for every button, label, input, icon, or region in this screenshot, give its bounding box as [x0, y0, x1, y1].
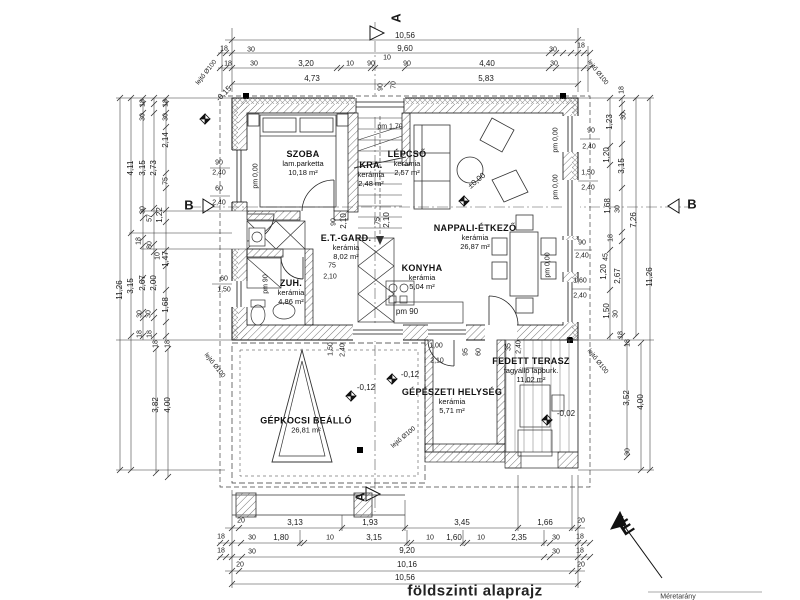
dim-bottom: 20 — [237, 518, 245, 525]
dim-top: 30 — [250, 61, 258, 68]
washbasin — [249, 228, 265, 246]
dim-left: 30 — [137, 310, 144, 318]
dim-right: 30 — [625, 448, 632, 456]
dim-right: 1,23 — [606, 114, 614, 130]
room-name: NAPPALI-ÉTKEZŐ — [434, 223, 517, 233]
dim-left: 75 — [163, 177, 170, 185]
dim-top: 30 — [549, 47, 557, 54]
dim-top: 18 — [224, 61, 232, 68]
dim-window: 2,40 — [212, 170, 226, 177]
carport-roof-support-triangle — [272, 350, 332, 462]
dim-window: 1,50 — [217, 287, 231, 294]
dim-right: 1,20 — [600, 264, 608, 280]
level-minus-0-12: -0,12 — [357, 384, 375, 392]
room-label-gépkocsi-beálló: GÉPKOCSI BEÁLLÓ26,81 m² — [260, 416, 352, 435]
dim-bottom: 18 — [217, 534, 225, 541]
dim-bottom: 30 — [552, 549, 560, 556]
dim-top: 4,40 — [479, 60, 495, 68]
dim-left: 2,67 — [139, 275, 147, 291]
room-area: 26,81 m² — [260, 426, 352, 435]
room-name: LÉPCSŐ — [388, 149, 427, 159]
level-minus-0-02: -0,02 — [557, 410, 575, 418]
dim-left: 2,14 — [162, 132, 170, 148]
plan-linework — [0, 0, 800, 600]
section-letter-b: B — [184, 199, 193, 212]
parapet-note: pm 90 — [263, 274, 270, 293]
dim-bottom: 20 — [577, 518, 585, 525]
dim-left: 18 — [147, 330, 154, 338]
room-name: ZUH. — [278, 278, 305, 288]
room-label-szoba: SZOBAlam.parketta10,18 m² — [282, 149, 323, 177]
dim-bottom: 10 — [426, 535, 434, 542]
room-label-fedett-terasz: FEDETT TERASZfagyálló lapburk.11,02 m² — [492, 356, 569, 384]
dim-door: 2,10 — [430, 358, 444, 365]
dim-right: 30 — [613, 310, 620, 318]
dim-bottom: 2,35 — [511, 534, 527, 542]
dim-window: 2,40 — [212, 200, 226, 207]
dim-door: 2,10 — [340, 213, 348, 229]
room-finish: kerámia — [434, 233, 517, 242]
dim-door: 90 — [331, 218, 338, 226]
dim-left: 2,73 — [150, 160, 158, 176]
dim-top: 18 — [577, 43, 585, 50]
dim-right: 1,50 — [603, 303, 611, 319]
dim-left: 3,82 — [152, 397, 160, 413]
room-finish: kerámia — [402, 273, 443, 282]
room-area: 2,57 m² — [388, 168, 427, 177]
dim-left: 18 — [140, 99, 147, 107]
dim-right: 18 — [608, 234, 615, 242]
dim-left: 18 — [163, 99, 170, 107]
dim-door: 35 — [506, 343, 513, 351]
dim-top: 90 — [378, 83, 385, 91]
room-area: 11,02 m² — [492, 375, 569, 384]
dim-top: 4,73 — [304, 75, 320, 83]
dim-top: 18 — [220, 46, 228, 53]
dim-window: 2,40 — [581, 185, 595, 192]
dim-window: 90 — [578, 240, 586, 247]
armchairs — [480, 118, 528, 202]
dim-bottom: 30 — [552, 535, 560, 542]
section-letter-a: A — [354, 492, 367, 501]
dim-window: 60 — [215, 186, 223, 193]
dim-bottom: 20 — [577, 562, 585, 569]
dim-bottom: 1,60 — [446, 534, 462, 542]
room-name: E.T.-GARD. — [321, 233, 372, 243]
room-finish: kerámia — [358, 170, 385, 179]
dim-top: 30 — [550, 61, 558, 68]
room-finish: fagyálló lapburk. — [492, 366, 569, 375]
section-letter-a: A — [390, 13, 403, 22]
dim-right: 18 — [625, 339, 632, 347]
dim-door: 95 — [463, 348, 470, 356]
dim-left: 30 — [140, 206, 147, 214]
dim-door: 2,40 — [516, 340, 523, 354]
room-area: 26,87 m² — [434, 242, 517, 251]
dim-bottom: 3,13 — [287, 519, 303, 527]
dim-top: 10 — [346, 61, 354, 68]
dim-top: 10 — [383, 55, 391, 62]
section-letter-b: B — [687, 198, 696, 211]
room-name: SZOBA — [282, 149, 323, 159]
dim-top: 30 — [247, 47, 255, 54]
dim-top: 90 — [403, 61, 411, 68]
dim-left: 1,22 — [156, 207, 164, 223]
dim-right: 3,15 — [618, 158, 626, 174]
dim-right: 45 — [603, 253, 610, 261]
dim-door: 2,40 — [340, 343, 347, 357]
dim-bottom: 1,93 — [362, 519, 378, 527]
dim-window: 1,50 — [581, 170, 595, 177]
parapet-note: pm 0,00 — [545, 252, 552, 277]
room-area: 5,71 m² — [402, 406, 502, 415]
scale-note: Méretarány — [660, 594, 695, 600]
room-label-gépészeti-helység: GÉPÉSZETI HELYSÉGkerámia5,71 m² — [402, 387, 502, 415]
dim-right: 4,00 — [637, 394, 645, 410]
room-name: GÉPKOCSI BEÁLLÓ — [260, 416, 352, 426]
dim-left: 30 — [140, 113, 147, 121]
dim-bottom: 30 — [248, 549, 256, 556]
dim-bottom: 10 — [477, 535, 485, 542]
dim-right: 30 — [621, 112, 628, 120]
dim-bottom: 3,45 — [454, 519, 470, 527]
dim-bottom: 10 — [326, 535, 334, 542]
dim-left: 1,47 — [162, 251, 170, 267]
dim-door: 2,10 — [383, 212, 391, 228]
dim-door: 1,50 — [328, 342, 335, 356]
dim-bottom: 30 — [248, 535, 256, 542]
dim-right: 18 — [618, 331, 625, 339]
dim-bottom: 9,20 — [399, 547, 415, 555]
dim-window: 90 — [587, 128, 595, 135]
dim-bottom: 18 — [576, 534, 584, 541]
room-label-zuh-: ZUH.kerámia4,86 m² — [278, 278, 305, 306]
parapet-note: pm 1,70 — [377, 124, 402, 131]
dim-left: 4,11 — [127, 161, 135, 176]
room-area: 10,18 m² — [282, 168, 323, 177]
dim-left: 57 — [147, 214, 154, 222]
dim-top: 70 — [391, 81, 398, 89]
dim-right: 11,26 — [646, 267, 654, 286]
dim-window: 1,60 — [573, 278, 587, 285]
dim-bottom: 18 — [217, 548, 225, 555]
dim-window: 2,40 — [575, 253, 589, 260]
parapet-note: pm 0,00 — [253, 163, 260, 188]
room-label-lépcső: LÉPCSŐkerámia2,57 m² — [388, 149, 427, 177]
dim-left: 30 — [163, 113, 170, 121]
room-name: KONYHA — [402, 263, 443, 273]
room-finish: kerámia — [388, 159, 427, 168]
parapet-note: pm 0,00 — [553, 174, 560, 199]
room-area: 5,04 m² — [402, 282, 443, 291]
floor-plan-canvas: 10,5618309,6010301818303,201090904,40304… — [0, 0, 800, 600]
dim-left: 18 — [153, 340, 160, 348]
dim-right: 2,67 — [614, 268, 622, 284]
dim-bottom: 10,56 — [395, 574, 415, 582]
stair-direction-arrow — [376, 236, 384, 245]
dim-left: 18 — [165, 340, 172, 348]
dim-right: 1,68 — [604, 198, 612, 214]
room-label-konyha: KONYHAkerámia5,04 m² — [402, 263, 443, 291]
dim-left: 11,26 — [116, 280, 124, 299]
dim-bottom: 1,66 — [537, 519, 553, 527]
room-finish: kerámia — [402, 397, 502, 406]
dim-left: 2,00 — [150, 275, 158, 291]
dim-window: 2,40 — [582, 144, 596, 151]
dim-bottom: 1,80 — [273, 534, 289, 542]
room-finish: kerámia — [321, 243, 372, 252]
room-finish: kerámia — [278, 288, 305, 297]
dim-left: 18 — [137, 330, 144, 338]
dim-door: 1,00 — [429, 343, 443, 350]
drawing-title: földszinti alaprajz — [407, 583, 542, 600]
dim-top: 3,20 — [298, 60, 314, 68]
dim-bottom: 3,15 — [366, 534, 382, 542]
dim-bottom: 18 — [576, 548, 584, 555]
dim-window: 60 — [220, 276, 228, 283]
dim-left: 3,15 — [127, 278, 135, 294]
room-name: GÉPÉSZETI HELYSÉG — [402, 387, 502, 397]
dim-bottom: 20 — [236, 562, 244, 569]
room-label-kra-: KRA.kerámia2,48 m² — [358, 160, 385, 188]
dim-top: 90 — [367, 61, 375, 68]
dim-door: 2,10 — [323, 274, 337, 281]
dim-bottom: 10,16 — [397, 561, 417, 569]
dim-left: 30 — [146, 310, 153, 318]
dim-door: 60 — [476, 348, 483, 356]
dim-right: 18 — [619, 86, 626, 94]
level-minus-0-12: -0,12 — [401, 371, 419, 379]
dim-left: 1,68 — [162, 297, 170, 313]
parapet-note: pm 0,00 — [553, 127, 560, 152]
dim-left: 3,15 — [139, 160, 147, 176]
dim-left: 4,00 — [164, 397, 172, 413]
parapet-note: pm 90 — [396, 308, 418, 316]
dim-left: 18 — [136, 237, 143, 245]
dim-window: 2,40 — [573, 293, 587, 300]
dim-top: 5,83 — [478, 75, 494, 83]
dim-door: 75 — [375, 217, 382, 225]
dim-window: 90 — [215, 160, 223, 167]
dim-top: 9,60 — [397, 45, 413, 53]
room-name: KRA. — [358, 160, 385, 170]
dim-right: 7,26 — [630, 212, 638, 228]
room-name: FEDETT TERASZ — [492, 356, 569, 366]
room-area: 4,86 m² — [278, 297, 305, 306]
dim-door: 75 — [328, 263, 336, 270]
dim-left: 80 — [147, 241, 154, 249]
dim-right: 3,52 — [623, 390, 631, 406]
room-finish: lam.parketta — [282, 159, 323, 168]
room-label-e-t-gard-: E.T.-GARD.kerámia8,02 m² — [321, 233, 372, 261]
room-label-nappali-étkező: NAPPALI-ÉTKEZŐkerámia26,87 m² — [434, 223, 517, 251]
room-area: 8,02 m² — [321, 252, 372, 261]
dim-right: 30 — [615, 205, 622, 213]
dim-right: 1,20 — [603, 147, 611, 163]
dim-top: 10,56 — [395, 32, 415, 40]
room-area: 2,48 m² — [358, 179, 385, 188]
